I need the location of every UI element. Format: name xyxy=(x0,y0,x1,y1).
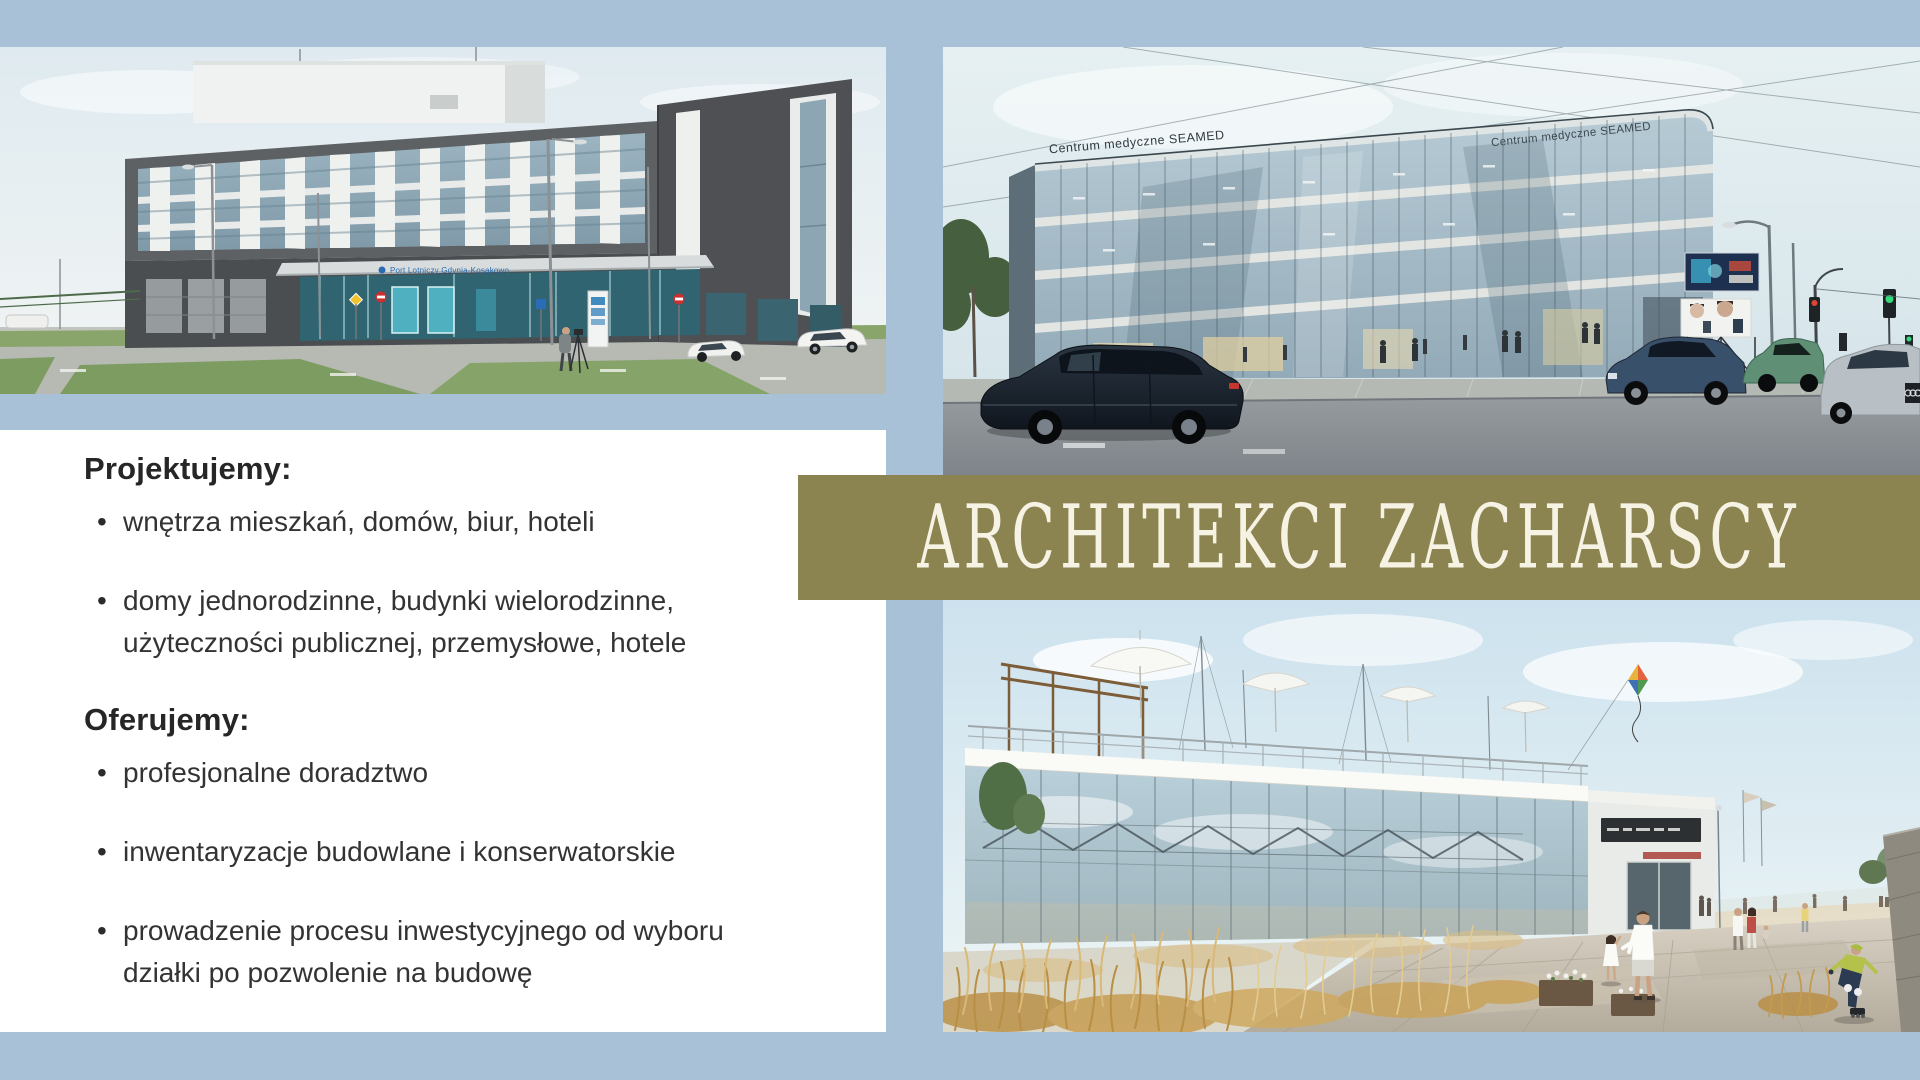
seamed-building-photo: Centrum medyczne SEAMED Centrum medyczne… xyxy=(943,47,1920,475)
list-item-text: prowadzenie procesu inwestycyjnego od wy… xyxy=(123,915,724,988)
list-item: wnętrza mieszkań, domów, biur, hoteli xyxy=(84,501,768,543)
canopy-sign-text: Port Lotniczy Gdynia-Kosakowo xyxy=(390,266,510,275)
list-item-text: wnętrza mieszkań, domów, biur, hoteli xyxy=(123,506,595,537)
list-item-text: profesjonalne doradztwo xyxy=(123,757,428,788)
bullet-icon xyxy=(97,831,107,873)
seaside-pavilion-photo xyxy=(943,600,1920,1032)
office-building-photo: Port Lotniczy Gdynia-Kosakowo xyxy=(0,47,886,394)
sign-marks xyxy=(1607,828,1680,831)
list-item: inwentaryzacje budowlane i konserwatorsk… xyxy=(84,831,768,873)
list-item: profesjonalne doradztwo xyxy=(84,752,768,794)
design-list: wnętrza mieszkań, domów, biur, hoteli do… xyxy=(84,501,886,664)
list-item-text: domy jednorodzinne, budynki wielorodzinn… xyxy=(123,585,686,658)
bullet-icon xyxy=(97,910,107,952)
airport-logo-icon xyxy=(379,267,386,274)
bullet-icon xyxy=(97,752,107,794)
list-item-text: inwentaryzacje budowlane i konserwatorsk… xyxy=(123,836,676,867)
bullet-icon xyxy=(97,501,107,543)
bullet-icon xyxy=(97,580,107,622)
company-title: ARCHITEKCI ZACHARSCY xyxy=(917,486,1800,588)
services-panel: Projektujemy: wnętrza mieszkań, domów, b… xyxy=(0,430,886,1032)
seamed-building: Centrum medyczne SEAMED Centrum medyczne… xyxy=(1009,110,1713,381)
list-item: domy jednorodzinne, budynki wielorodzinn… xyxy=(84,580,768,664)
services-content: Projektujemy: wnętrza mieszkań, domów, b… xyxy=(0,430,886,994)
offer-heading: Oferujemy: xyxy=(84,701,886,740)
design-heading: Projektujemy: xyxy=(84,450,886,489)
title-banner: ARCHITEKCI ZACHARSCY xyxy=(798,475,1920,600)
slide: Port Lotniczy Gdynia-Kosakowo xyxy=(0,0,1920,1080)
list-item: prowadzenie procesu inwestycyjnego od wy… xyxy=(84,910,768,994)
offer-list: profesjonalne doradztwo inwentaryzacje b… xyxy=(84,752,886,994)
